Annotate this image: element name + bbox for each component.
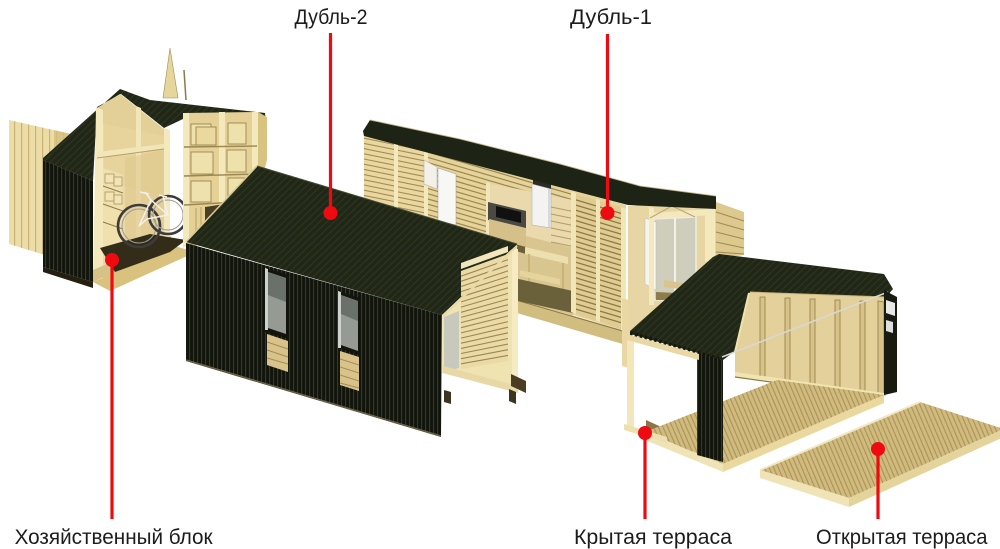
svg-text:Дубль-2: Дубль-2 [295, 5, 368, 29]
svg-text:Открытая терраса: Открытая терраса [816, 525, 988, 549]
svg-text:Крытая терраса: Крытая терраса [574, 525, 732, 549]
svg-text:Хозяйственный блок: Хозяйственный блок [15, 525, 214, 549]
svg-text:Дубль-1: Дубль-1 [570, 5, 652, 29]
